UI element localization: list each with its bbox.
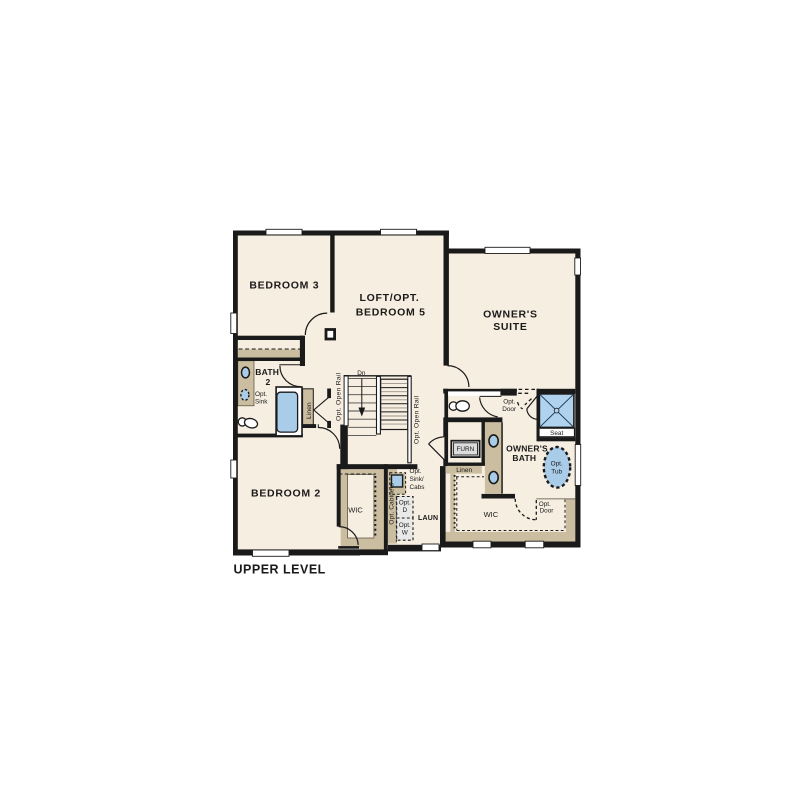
svg-text:Opt.: Opt.	[503, 399, 515, 406]
svg-text:Tub: Tub	[551, 468, 562, 475]
svg-text:BATH: BATH	[255, 367, 279, 377]
svg-text:Cabs: Cabs	[410, 484, 425, 491]
svg-text:UPPER LEVEL: UPPER LEVEL	[234, 563, 326, 577]
svg-text:Opt.: Opt.	[399, 522, 411, 529]
svg-text:Door: Door	[540, 508, 555, 515]
svg-text:LAUN: LAUN	[418, 515, 438, 522]
svg-text:Opt.: Opt.	[551, 461, 563, 468]
svg-text:WIC: WIC	[484, 510, 499, 519]
svg-text:Linen: Linen	[456, 467, 472, 474]
svg-text:BEDROOM 5: BEDROOM 5	[356, 306, 426, 318]
svg-text:BEDROOM 3: BEDROOM 3	[249, 279, 319, 291]
svg-text:D: D	[402, 507, 407, 514]
svg-text:Sink: Sink	[255, 399, 268, 406]
svg-text:FURN: FURN	[457, 446, 475, 453]
svg-text:2: 2	[266, 377, 271, 387]
svg-text:Opt. Open Rail: Opt. Open Rail	[336, 372, 343, 421]
svg-text:Opt. Open Rail: Opt. Open Rail	[414, 395, 421, 444]
svg-text:LOFT/OPT.: LOFT/OPT.	[360, 292, 420, 304]
svg-text:Sink/: Sink/	[410, 476, 424, 483]
svg-text:SUITE: SUITE	[493, 321, 527, 333]
svg-text:BEDROOM 2: BEDROOM 2	[251, 488, 321, 500]
svg-text:Opt.: Opt.	[399, 499, 411, 506]
svg-text:Seat: Seat	[550, 430, 563, 437]
svg-text:Linen: Linen	[306, 402, 313, 419]
svg-text:Opt.: Opt.	[255, 391, 267, 398]
svg-text:Opt.: Opt.	[410, 468, 422, 475]
svg-text:Opt. Cabinets: Opt. Cabinets	[388, 482, 395, 524]
svg-text:Dn: Dn	[357, 370, 366, 377]
svg-text:OWNER'S: OWNER'S	[483, 308, 538, 320]
svg-text:WIC: WIC	[348, 506, 363, 515]
svg-text:W: W	[402, 530, 409, 537]
svg-text:BATH: BATH	[512, 453, 536, 463]
svg-text:Door: Door	[502, 406, 517, 413]
